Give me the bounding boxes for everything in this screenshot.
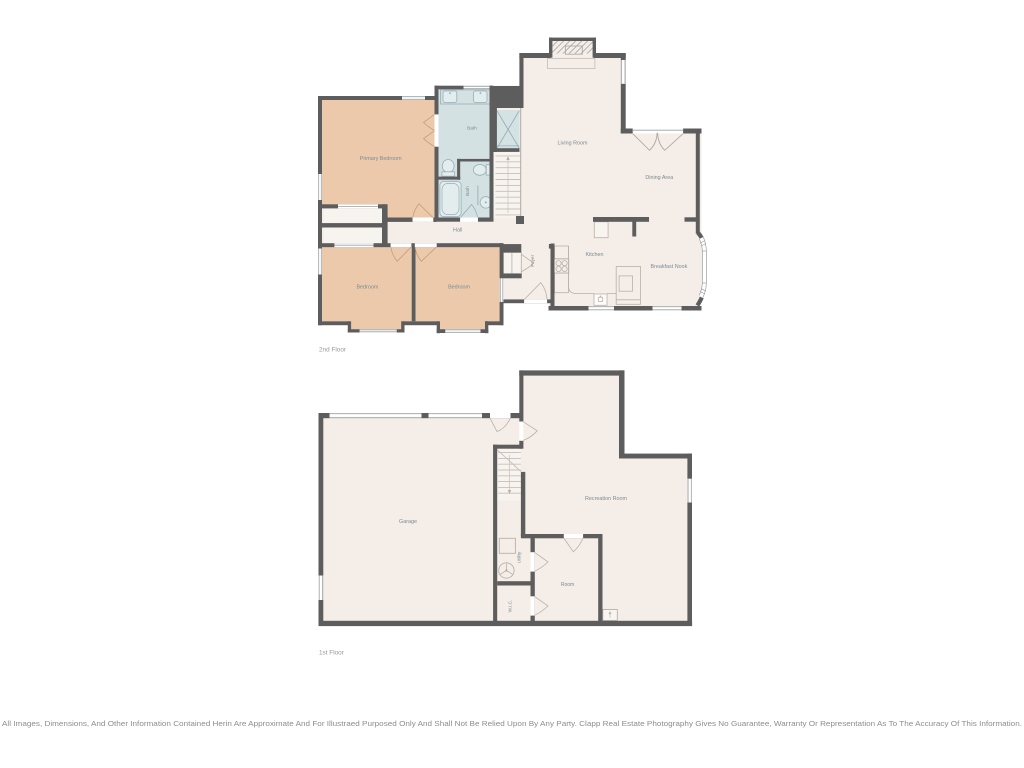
svg-text:Recreation Room: Recreation Room: [585, 496, 627, 502]
svg-text:Living Room: Living Room: [558, 140, 588, 146]
svg-text:1st Floor: 1st Floor: [319, 650, 345, 657]
svg-text:Bedroom: Bedroom: [448, 285, 470, 291]
svg-text:Room: Room: [561, 582, 574, 588]
svg-text:Dining Area: Dining Area: [645, 175, 673, 181]
svg-text:W.I.C.: W.I.C.: [508, 600, 513, 613]
svg-text:All Images, Dimensions, And Ot: All Images, Dimensions, And Other Inform…: [2, 719, 1022, 728]
svg-text:Foyer: Foyer: [530, 254, 535, 266]
svg-text:Primary Bedroom: Primary Bedroom: [360, 156, 402, 162]
svg-text:Breakfast Nook: Breakfast Nook: [650, 264, 687, 270]
svg-text:Hall: Hall: [453, 227, 462, 233]
svg-text:Garage: Garage: [399, 519, 417, 525]
svg-text:Bedroom: Bedroom: [356, 285, 378, 291]
svg-text:Bath: Bath: [467, 126, 477, 131]
svg-text:Kitchen: Kitchen: [586, 252, 604, 258]
svg-text:Bath: Bath: [465, 186, 470, 196]
svg-text:2nd Floor: 2nd Floor: [319, 347, 347, 354]
svg-text:Utility: Utility: [516, 551, 521, 563]
